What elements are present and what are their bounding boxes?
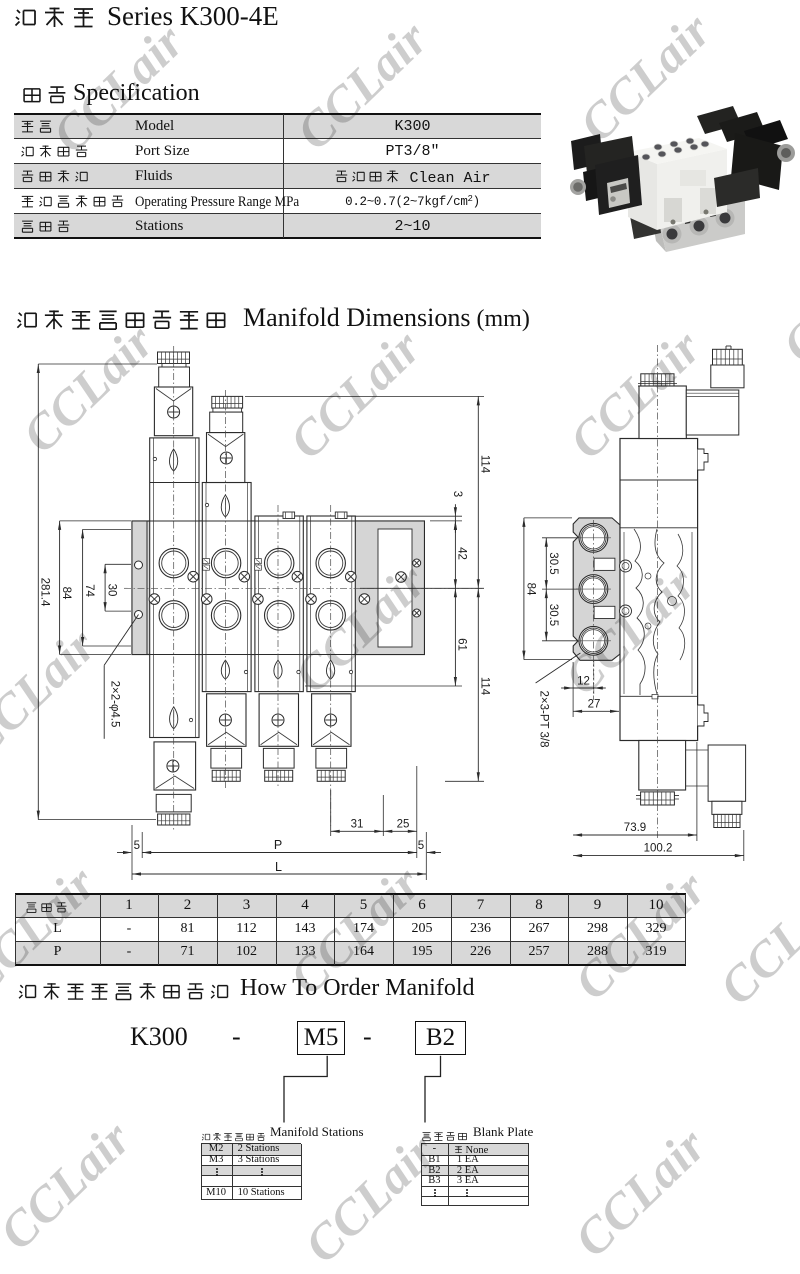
- svg-text:2×3-PT 3/8: 2×3-PT 3/8: [537, 690, 549, 747]
- svg-text:84: 84: [60, 587, 72, 600]
- svg-text:27: 27: [588, 699, 601, 711]
- svg-text:61: 61: [455, 638, 467, 651]
- svg-text:30.5: 30.5: [547, 604, 559, 626]
- svg-text:12: 12: [577, 676, 590, 688]
- svg-text:5: 5: [418, 840, 424, 852]
- svg-text:31: 31: [351, 819, 364, 831]
- svg-text:100.2: 100.2: [644, 843, 673, 855]
- svg-text:P: P: [274, 838, 282, 852]
- svg-text:74: 74: [83, 584, 95, 597]
- svg-text:73.9: 73.9: [624, 822, 646, 834]
- svg-text:281.4: 281.4: [38, 578, 50, 607]
- svg-text:5: 5: [134, 840, 140, 852]
- svg-text:L: L: [275, 860, 282, 874]
- svg-text:25: 25: [397, 819, 410, 831]
- svg-text:84: 84: [524, 583, 536, 596]
- svg-text:114: 114: [478, 455, 490, 474]
- svg-text:30.5: 30.5: [547, 552, 559, 574]
- svg-text:42: 42: [455, 547, 467, 560]
- svg-text:30: 30: [105, 584, 117, 597]
- svg-text:3: 3: [451, 491, 463, 497]
- svg-text:2×2-φ4.5: 2×2-φ4.5: [108, 681, 120, 728]
- svg-text:114: 114: [478, 677, 490, 696]
